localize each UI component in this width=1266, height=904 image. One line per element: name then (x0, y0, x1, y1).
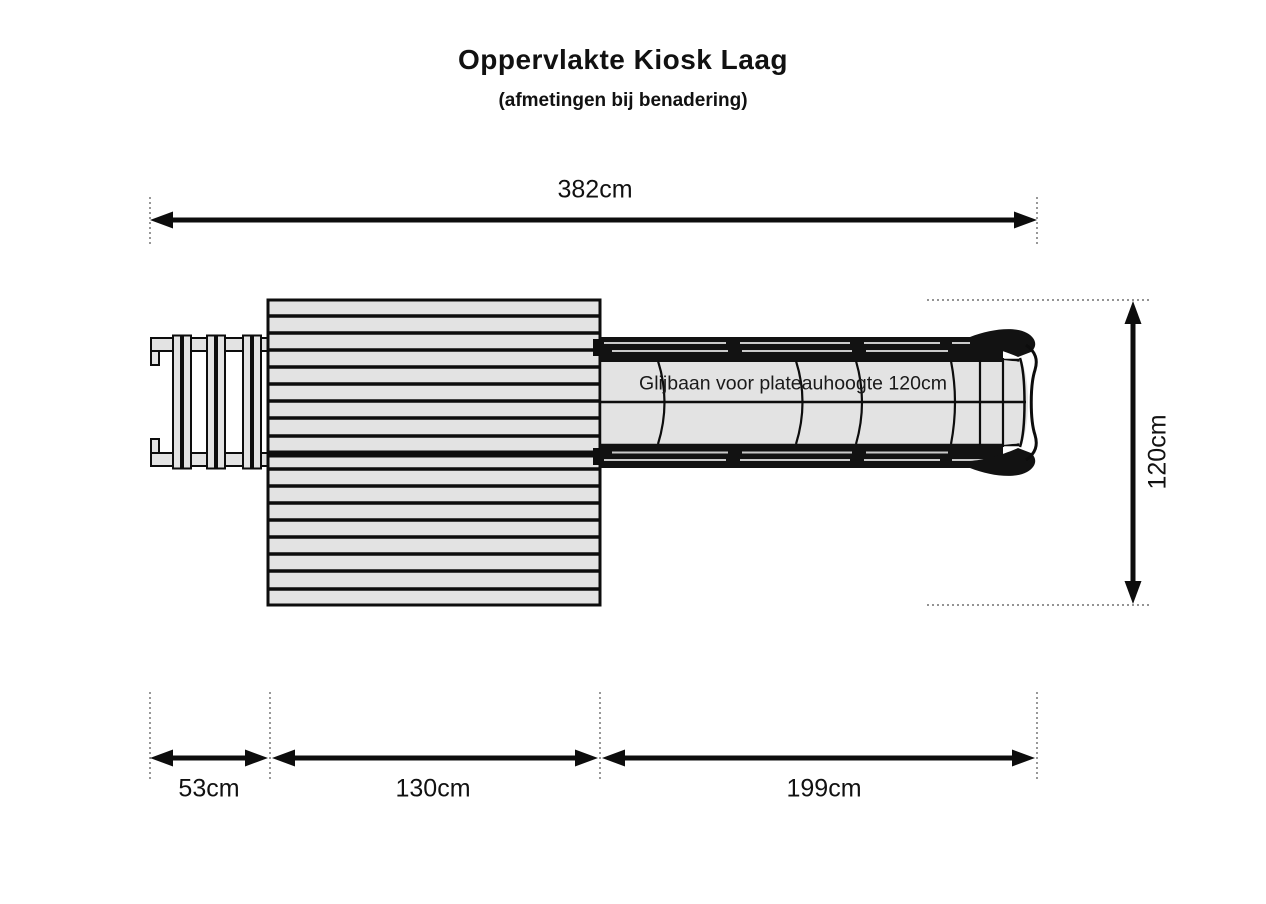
dim-slide-length-label: 199cm (786, 775, 861, 804)
dim-ladder-width-label: 53cm (178, 775, 239, 804)
slide-drawing (593, 329, 1036, 476)
platform-drawing (268, 300, 600, 605)
arrowhead-up (1125, 301, 1142, 324)
kiosk-top-view-drawing (0, 0, 1266, 904)
slide-annotation-label: Glijbaan voor plateauhoogte 120cm (639, 373, 947, 396)
arrowhead-down (1125, 581, 1142, 604)
ladder-drawing (151, 336, 269, 469)
slide-wall-top (600, 337, 1003, 362)
bottom-dimensions (150, 692, 1037, 779)
dim-total-width-label: 382cm (557, 176, 632, 205)
dim-depth-label: 120cm (1144, 414, 1173, 489)
diagram-canvas: Oppervlakte Kiosk Laag (afmetingen bij b… (0, 0, 1266, 904)
slide-length-arrow (602, 750, 1035, 767)
arrowhead-right (1014, 212, 1037, 229)
platform-width-arrow (272, 750, 598, 767)
ladder-width-arrow (150, 750, 268, 767)
arrowhead-left (150, 212, 173, 229)
dim-platform-width-label: 130cm (395, 775, 470, 804)
slide-wall-bottom (600, 444, 1003, 468)
ladder-rungs (173, 336, 261, 469)
top-dimension (150, 197, 1037, 247)
